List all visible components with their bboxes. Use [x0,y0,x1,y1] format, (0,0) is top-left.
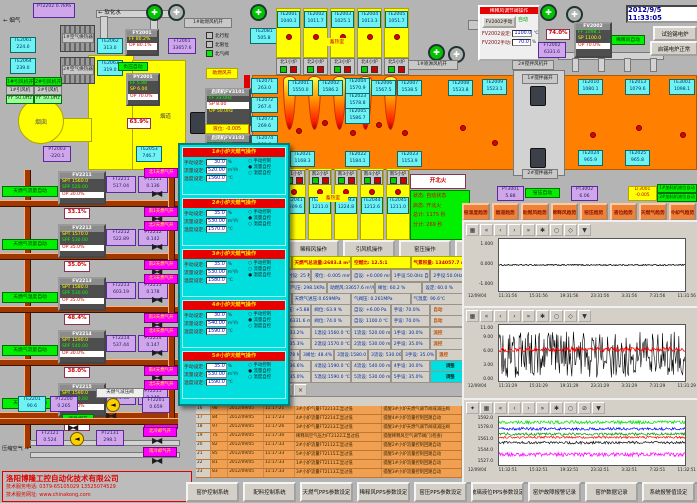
alarm-time: 11:17:21 [264,406,295,414]
north-gas-valve-icon[interactable]: ▶◀ [152,349,160,357]
south-gas-valve-label: 南1天燃气开 [144,207,178,217]
flow-set-input[interactable]: 530.00 [206,269,227,276]
y-tick-label: 11.00 [480,326,493,331]
gas-valve-position: 38.0% [64,367,90,378]
chart-toolbar-icon[interactable]: ✦ [466,402,479,414]
dilution-panel-title: 稀释风调节阀操作 [480,7,538,14]
bottom-nav-button[interactable]: 窑炉数据记录 [585,482,638,502]
south-burner-chip[interactable]: 南3小炉 [335,170,357,185]
chart-toolbar-icon[interactable]: ▼ [578,224,591,236]
burner-cell: 5温设:1590.0 ℃ [311,371,351,383]
chart-toolbar-icon[interactable]: ○ [550,224,563,236]
temp-set-input[interactable]: 1560.0 [206,175,227,182]
te2201-box: TE220190.6 [18,396,46,412]
chart-toolbar-icon[interactable]: ▦ [480,402,493,414]
fire-direction-button[interactable]: 开北火 [410,174,466,189]
manual-set-input[interactable]: 35.0 [206,261,227,268]
trend-button[interactable]: 稀释风趋势 [551,203,579,221]
gas-pid-panel: FV2212SPT 1570.0SPF 530.00OP 35.0% [58,224,106,258]
temp-set-input[interactable]: 1570.0 [206,226,227,233]
pressure-reducer-valve-icon[interactable]: ◄ [106,398,120,412]
alarm-reason: 提醒3#小炉流量控制回路自动 [382,469,462,477]
pt2202-box: PT2202 0.7kPa [33,3,75,18]
chart-toolbar-icon[interactable]: ▼ [578,310,591,322]
crown-te-box-3: TE20231578.8 [345,93,370,109]
temp-set-label: 温度设定: [184,328,205,335]
regenerator-box: TE20021011.7 [303,8,328,58]
chart-toolbar-icon[interactable]: ○ [550,310,563,322]
manual-set-input[interactable]: 30.0 [206,159,227,166]
alarm-reason: 提醒4#小炉流量控制回路自动 [382,415,462,423]
temp-set-label: 温度设定: [184,379,205,386]
ft2121-box: FT21210.524 [36,430,64,446]
alarm-row-number: 22 [196,460,211,468]
burner-off-indicator [296,177,303,184]
alarm-date: 2012/09/05 [228,460,264,468]
temp-auto-radio[interactable]: ○ 温度自控 [248,374,284,380]
te2062-box: TE2062313.0 [97,38,123,54]
regenerator-te-box: TE20011040.1 [277,11,300,28]
sensor-dot [291,189,297,195]
flow-set-label: 流量设定: [184,167,205,174]
te2053-box: TE2053746.7 [136,146,162,162]
alarm-row[interactable]: 21 85 2012/09/05 11:17:33 5#小炉流量FT2115工显… [196,451,462,460]
north-gas-valve-icon[interactable]: ▶◀ [152,296,160,304]
burner-on-indicator [280,66,287,73]
chart-toolbar-icon[interactable]: ‹ [494,224,507,236]
alarm-date: 2012/09/05 [228,433,264,441]
clock-text: 2012/9/5 11:33:05 [628,6,697,22]
combustion-fan-run-label: 1#助燃风机开 [184,18,232,28]
alarm-row[interactable]: 16 98 2012/09/05 11:17:21 3#小炉气量FT2213工显… [196,406,462,415]
sensor-dot [636,125,642,131]
gas-pid-panel: FV2213SPT 1580.0SPF 530.00OP 35.0% [58,277,106,311]
ft2001-box: FT200133657.6 [168,38,196,54]
feeder1-auto-label: 1#加料机液位自动 [657,184,697,193]
burner-gas-panel: 5#小炉天燃气操作 手动设定:35.0% 流量设定:530.00m³/h 温度设… [182,351,286,399]
trend-button[interactable]: 天燃气趋势 [639,203,667,221]
gas-valve-position: 48.4% [64,314,90,325]
combustion-air-open-label: 助燃风开 [206,68,238,79]
alarm-code: 83 [211,469,228,477]
spray-fan-run-label: 1#喷淋风机开 [406,60,458,70]
temp-auto-radio[interactable]: ● 温度自控 [248,272,284,278]
flow-set-label: 流量设定: [184,371,205,378]
fv2002-panel: FV2002FF 1098.1SP 1100.0OP 70.0% [574,22,612,58]
temp-set-label: 温度设定: [184,175,205,182]
fv2002-set-input[interactable]: 1100.0 [512,30,532,37]
chart-date-label: 12/09/04 [468,293,486,298]
chart-toolbar-icon[interactable]: ◇ [564,310,577,322]
alarm-date: 2012/09/05 [228,469,264,477]
burner-off-indicator [322,177,329,184]
temp-auto-radio[interactable]: ○ 温度自控 [248,170,284,176]
te2081-box: TE2081505.8 [250,28,278,44]
neg-pressure-auto-label: 负压自动 [118,62,148,71]
chart-toolbar-icon[interactable]: ‹ [494,310,507,322]
status-line: 启态: 开北火 [413,202,467,212]
tin-furnace-normal-button[interactable]: 启锡电炉正常 [650,41,697,56]
y-tick-label: 9.00 [483,335,493,340]
chart-date-label: 12/09/04 [468,383,486,388]
alarm-row[interactable]: 17 84 2012/09/05 11:17:23 4#小炉流量FT2214工显… [196,415,462,424]
ft2201-box: FT22010.659 [142,397,170,413]
burner-gas-panel-title: 2#小炉天燃气操作 [183,199,285,208]
manual-set-input[interactable]: 35.0 [206,363,227,370]
sensor-dot [680,132,686,138]
bottom-nav-button[interactable]: 系统报警值设定 [642,482,695,502]
regenerator-box: TE20041013.3 [357,8,382,58]
sensor-dot [350,130,356,136]
bottom-nav-button[interactable]: 窑压PPS参数设定 [414,482,467,502]
y-tick-label: 1527.0 [478,459,493,464]
crown-te-box-6: TE20071538.5 [397,80,422,96]
ft2002-box: FT20026331.6 [538,42,566,58]
temperature-trend-panel: ✦▦«‹›»✱○⊘▼ 1592.01578.01561.01544.01527.… [462,398,697,484]
flow-set-input[interactable]: 530.00 [206,371,227,378]
summary-cell: 自设: +0.000 mm [351,269,391,282]
chart-toolbar-icon[interactable]: › [508,310,521,322]
trend-button[interactable]: 液位趋势 [610,203,638,221]
flow-set-input[interactable]: 540.00 [206,320,227,327]
bottom-te-box-2: TE20231153.9 [397,151,422,167]
chart-toolbar-icon[interactable]: ▦ [466,224,479,236]
stirrer1-run-label: 1#搅拌器开 [522,74,558,84]
alarm-reason: 提醒3#小炉天燃气调节阀或减压阀 [382,424,462,432]
chimney: 烟囱 [18,98,64,144]
chart3-y-axis: 1592.01578.01561.01544.01527.0 [468,416,494,464]
bottom-nav-button[interactable]: 窑炉控制系统 [186,482,239,502]
chart-toolbar-icon[interactable]: ⊘ [578,402,591,414]
flow-set-input[interactable]: 520.00 [206,167,227,174]
right2-te-box-1: TE2025965.8 [625,150,650,166]
stirrer-motor-1 [530,86,546,106]
temp-set-label: 温度设定: [184,226,205,233]
company-phone: 技术服务电话: 0379-65105029 13525074529 [6,484,188,492]
burner-gas-panel: 1#小炉天燃气操作 手动设定:30.0% 流量设定:520.00m³/h 温度设… [182,147,286,195]
burner-gas-panel: 3#小炉天燃气操作 手动设定:35.0% 流量设定:530.00m³/h 温度设… [182,249,286,297]
alarm-row[interactable]: 23 83 2012/09/05 11:17:33 3#小炉流量FT2113工显… [196,469,462,478]
alarm-row-number: 21 [196,451,211,459]
y-tick-label: -1.000 [479,282,493,287]
alarm-point: 2#小炉流量FT2112工显过低 [295,442,382,450]
chart-toolbar-icon[interactable]: » [522,310,535,322]
burner-on-indicator [334,66,341,73]
status-line: 状态: 自动状态 [413,192,467,202]
chart2-x-axis: 12/09/04 11:31:2915:31:2919:31:2923:31:2… [468,383,696,388]
strip-cell: 空燃比: 12.5:1 [351,256,411,269]
crown-te-box-0: TE20011550.0 [288,80,313,96]
chart3-toolbar: ✦▦«‹›»✱○⊘▼ [466,402,696,414]
south-te-box: TE20441212.6 [361,197,383,214]
regenerator-te-box: TE20021011.7 [304,11,327,28]
pt2003-box: PT2003-220.1 [43,146,71,162]
trend-button[interactable]: 窑温度趋势 [462,203,490,221]
south-burner-chip[interactable]: 南5小炉 [387,170,409,185]
regenerator-box: TE20051051.7 [384,8,409,58]
south-burner-chip[interactable]: 南4小炉 [361,170,383,185]
limit-label: 北行程 [215,33,229,39]
fan2-run-label: 2#引风机开 [34,77,62,86]
north-burner-label: 北1小炉 [280,60,297,65]
chart-toolbar-icon[interactable]: ▼ [592,402,605,414]
bottom-nav-button[interactable]: 玻璃液位PPS参数设定 [471,482,524,502]
bottom-nav-button[interactable]: 窑炉故障报警记录 [528,482,581,502]
manual-set-input[interactable]: 35.0 [206,210,227,217]
fan1-ff-box: FF 50.0Hz [6,95,34,104]
manifold-stub2 [598,58,605,72]
chart-toolbar-icon[interactable]: « [480,224,493,236]
chart-toolbar-icon[interactable]: ✱ [550,402,563,414]
chart1-toolbar: ▦«‹›»✱○◇▼ [466,224,696,236]
alarm-row-number: 18 [196,424,211,432]
south-regenerator-box: 南4小炉 TE20441212.6 [360,168,384,240]
scada-furnace-screen: 烟囱 ✚ ✚ ✚ ✚ ✚ ✚ ✚ ← 烟气 PT2202 0.7kPa ← 软化… [0,0,697,503]
fv2002-manual-button[interactable]: FV2002手动 [482,16,516,28]
north-burner-label: 北5小炉 [388,60,405,65]
dilution-fan-icon: ✚ [540,4,557,21]
north-burner-label: 北4小炉 [361,60,378,65]
alarm-row[interactable]: 20 82 2012/09/05 11:17:33 2#小炉流量FT2112工显… [196,442,462,451]
status-line: 分计: 269 秒 [413,221,467,231]
regenerator-box: TE20011040.1 [276,8,301,58]
north-regenerator-row: TE20011040.1 TE20021011.7 TE20031025.1 T… [276,8,409,58]
gas-mode-label: 天燃气温度自动 [2,292,58,303]
bottom-nav-button[interactable]: 天燃气PPS参数设定 [300,482,353,502]
regenerator-te-box: TE20051051.7 [385,11,408,28]
burner-off-indicator [371,66,378,73]
fan1-label: 1#引风机 [6,86,34,95]
summary-cell: 手设: 70.0% [391,315,431,327]
alarm-toolbar-icon[interactable]: × [294,384,307,396]
fy2001-panel: FY2001FF 80.2%OP 80.1% [125,29,159,56]
gas-ft-box: FT2211517.04 [106,176,136,193]
y-tick-label: 1561.0 [478,437,493,442]
trend-button-row: 窑温度趋势烟道趋势助燃风趋势稀释风趋势窑压趋势液位趋势天燃气趋势冷却气趋势 [462,203,696,221]
manual-set-input[interactable]: 30.0 [206,312,227,319]
te2061-box: TE2061224.0 [10,37,36,53]
north-burner-chip[interactable]: 北2小炉 [303,58,328,75]
y-tick-label: 1592.0 [478,416,493,421]
limit-indicator [206,41,213,48]
fan2-label: 2#引风机 [34,86,62,95]
burner-off-indicator [374,177,381,184]
alarm-point: 5#小炉流量FT2115工显过低 [295,451,382,459]
summary-cell: 1手设:50.0Hz 自动 [391,269,431,282]
chart-toolbar-icon[interactable]: « [480,310,493,322]
heat-exchanger-1-label: 1#空气换热器 [62,33,94,43]
flow-set-input[interactable]: 530.00 [206,218,227,225]
temp-set-input[interactable]: 1590.0 [206,379,227,386]
alarm-code: 82 [211,442,228,450]
north-burner-chip[interactable]: 北5小炉 [384,58,409,75]
south-te-box: TE20451211.0 [387,197,409,214]
north-burner-chip[interactable]: 北4小炉 [357,58,382,75]
burner-gas-panel-title: 3#小炉天燃气操作 [183,250,285,259]
alarm-code: 97 [211,424,228,432]
chart-toolbar-icon[interactable]: ○ [564,402,577,414]
sensor-dot [402,130,408,136]
compressed-air-label: 压缩空气 → [2,445,29,452]
pressure-trend-plot [498,324,686,382]
temperature-trend-plot [498,416,686,466]
burner-off-indicator [348,177,355,184]
north-gas-valve-icon[interactable]: ▶◀ [152,190,160,198]
gas-mode-label: 天燃气流量自动 [2,239,58,250]
y-tick-label: 6.00 [483,349,493,354]
alarm-row-number: 19 [196,433,211,441]
gas-pid-panel: FV2211SPT 1560.0SPF 520.00OP 30.0% [58,171,106,205]
company-website[interactable]: 技术服务网址: www.chinakong.com [6,492,188,500]
gas-outlet-pipe [0,418,178,425]
south-regen-label: 蓄热室 [318,194,348,202]
limit-label: 北气阀 [215,51,229,57]
fan2-ff-box: FF 50.0Hz [34,95,62,104]
heat-exchanger-2-label: 2#空气换热器 [62,65,94,75]
gas-mode-label: 天燃气流量自动 [2,186,58,197]
te-box: TE2071263.0 [251,78,278,94]
bottom-nav-button[interactable]: 配料控制系统 [243,482,296,502]
chart-toolbar-icon[interactable]: › [522,402,535,414]
south-cooling-valve-icon[interactable]: ▶◀ [152,457,160,465]
burner-cell: 5流设: 530.00 m³/h [351,371,391,383]
flow-set-label: 流量设定: [184,269,205,276]
north-burner-chip[interactable]: 北1小炉 [276,58,301,75]
south-burner-chip[interactable]: 南2小炉 [309,170,331,185]
sensor-dot [367,34,373,40]
trend-button[interactable]: 助燃风趋势 [521,203,549,221]
alarm-reason: 提醒3#小炉天燃气调节阀或减压阀 [382,406,462,414]
flue-gas-label: ← 烟气 [3,16,20,24]
south-gas-valve-label: 南4天燃气开 [144,366,178,376]
alarm-point: 3#小炉气量FT2213工显过低 [295,424,382,432]
gas-train: 天燃气流量自动 FV2212SPT 1570.0SPF 530.00OP 35.… [0,223,178,276]
burner-gas-panel-title: 1#小炉天燃气操作 [183,148,285,157]
temp-auto-radio[interactable]: ○ 温度自控 [248,323,284,329]
pt3002-box: PT30026.06 [571,186,598,201]
tin-furnace-test-button[interactable]: 试验锡电炉 [653,26,697,41]
manual-set-label: 手动设定: [184,159,205,166]
alarm-code: 98 [211,406,228,414]
alarm-row-number: 23 [196,469,211,477]
burner-gas-popup: 1#小炉天燃气操作 手动设定:30.0% 流量设定:520.00m³/h 温度设… [178,143,290,406]
combustion-fan2-icon: ✚ [168,4,185,21]
pressure-reducer-label: 天燃气减压阀 [96,388,144,398]
chart-toolbar-icon[interactable]: ✱ [536,224,549,236]
bottom-te-box-0: TE20211168.3 [290,151,315,167]
air-valve-icon[interactable]: ◄ [70,432,84,446]
manifold-stub1 [572,58,579,72]
north-gas-valve-label: 北1天燃气开 [144,168,178,178]
north-burner-chip[interactable]: 北3小炉 [330,58,355,75]
gas-ft-box: FT2212522.89 [106,229,136,246]
chart-toolbar-icon[interactable]: ◇ [564,224,577,236]
north-burner-label: 北3小炉 [334,60,351,65]
sensor-dot [590,132,596,138]
north-gas-valve-icon[interactable]: ▶◀ [152,243,160,251]
trend-button[interactable]: 冷却气趋势 [669,203,697,221]
south-regenerator-row: 南1小炉 TE20411209.6 南2小炉 TE20421211.0 南3小炉… [282,168,410,240]
te2064-box: TE2064239.0 [10,58,36,74]
gas-train: 天燃气流量自动 FV2214SPT 1590.0SPF 540.00OP 30.… [0,329,178,382]
alarm-row-number: 17 [196,415,211,423]
chart-toolbar-icon[interactable]: ✱ [536,310,549,322]
burner-on-indicator [364,177,371,184]
right-te-box-1: TE20101080.1 [578,79,603,95]
south-regenerator-box: 南5小炉 TE20451211.0 [386,168,410,240]
trend-button[interactable]: 烟道趋势 [492,203,520,221]
chart-toolbar-icon[interactable]: « [494,402,507,414]
chart-toolbar-icon[interactable]: ‹ [508,402,521,414]
bottom-button-row: 窑炉控制系统配料控制系统天燃气PPS参数设定稀释风PPS参数设定窑压PPS参数设… [186,482,695,502]
feeder-fv3101-panel: 启闭机FV3101FF 33.0HzSP 8.00OP 50.0Hz [205,88,251,126]
sensor-dot [322,120,328,126]
alarm-row[interactable]: 19 75 2012/09/05 11:17:30 稀释风空气压力FT2122工… [196,433,462,442]
manifold-stub4 [650,58,657,72]
gas-valve-position: 33.1% [64,208,90,219]
limit-indicator [206,50,213,57]
north-cooling-valve-icon[interactable]: ▶◀ [152,437,160,445]
north-gas-valve-label: 北2天燃气开 [144,221,178,231]
trend-button[interactable]: 窑压趋势 [580,203,608,221]
right2-te-box-0: TE2024965.9 [578,150,603,166]
chart1-y-axis: 1.0000.000-1.000 [468,238,494,290]
y-tick-label: 0.00 [483,377,493,382]
firing-status-panel: 状态: 自动状态 启态: 开北火 总计: 1175 秒 分计: 269 秒 [410,190,470,240]
chart-toolbar-icon[interactable]: » [522,224,535,236]
gas-mode-label: 天燃气流量自动 [2,345,58,356]
soft-water-label: ← 软化水 [98,8,121,16]
chart-toolbar-icon[interactable]: › [508,224,521,236]
pressure-trend-panel: ▦«‹›»✱○◇▼ 11.009.006.003.000.00 12/09/04… [462,306,697,400]
sensor-dot [296,128,302,134]
burner-gas-panel-title: 4#小炉天燃气操作 [183,301,285,310]
y-tick-label: 3.00 [483,363,493,368]
glass-level-chip: 液位: -0.005 [205,124,249,134]
chimney-label: 烟囱 [35,117,47,126]
gas-train: 天燃气流量自动 FV2211SPT 1560.0SPF 520.00OP 30.… [0,170,178,223]
sensor-dot [492,140,498,146]
bottom-nav-button[interactable]: 稀释风PPS参数设定 [357,482,410,502]
chart-toolbar-icon[interactable]: » [536,402,549,414]
temp-set-input[interactable]: 1580.0 [206,277,227,284]
burner-off-indicator [398,66,405,73]
spray-fan-icon: ✚ [428,44,445,61]
alarm-row[interactable]: 18 97 2012/09/05 11:17:26 3#小炉气量FT2213工显… [196,424,462,433]
right-te-box-2: TE20131079.6 [625,79,650,95]
south-gas-valve-label: 南3天燃气开 [144,313,178,323]
chart-toolbar-icon[interactable]: ▦ [466,310,479,322]
manual-set-label: 手动设定: [184,210,205,217]
manual-set-label: 手动设定: [184,312,205,319]
emergency-valve-icon[interactable]: ▶◀ [68,424,76,432]
pt2200-box: PT22000.265 [50,396,78,412]
burner-off-indicator [290,66,297,73]
y-tick-label: 1544.0 [478,448,493,453]
alarm-code: 81 [211,460,228,468]
burner-on-indicator [338,177,345,184]
south-regenerator-box: 南3小炉 TE20431224.8 [334,168,358,240]
crown-te-box-1: TE20021586.2 [318,80,343,96]
temp-set-input[interactable]: 1590.0 [206,328,227,335]
dilution-damper-position: 74.0% [546,29,570,40]
alarm-row[interactable]: 22 81 2012/09/05 11:17:33 1#小炉流量FT2111工显… [196,460,462,469]
stirrer-motor-2 [530,148,546,168]
alarm-date: 2012/09/05 [228,424,264,432]
temp-auto-radio[interactable]: ○ 温度自控 [248,221,284,227]
limit-legend: 北行程北限位北气阀 [206,32,236,59]
fv2002-manual-input[interactable]: 70.0 [512,39,530,46]
